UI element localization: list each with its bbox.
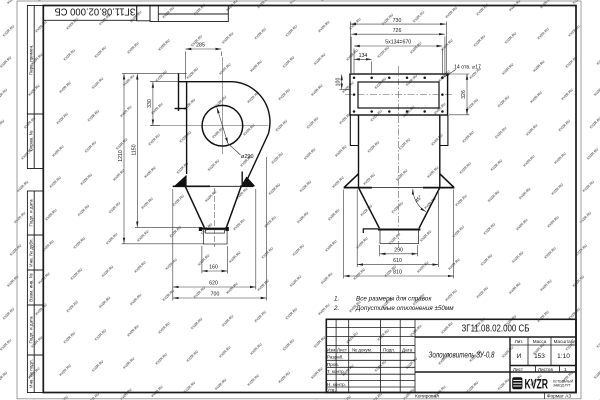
svg-text:Дата: Дата <box>402 347 413 352</box>
svg-text:Разраб.: Разраб. <box>327 355 344 360</box>
svg-text:326: 326 <box>461 90 467 99</box>
svg-text:1.: 1. <box>334 295 339 302</box>
svg-text:№ докум.: № докум. <box>352 347 372 352</box>
svg-text:Формат А3: Формат А3 <box>547 394 572 400</box>
svg-text:Листов: Листов <box>538 367 553 372</box>
svg-text:1150: 1150 <box>131 144 137 155</box>
svg-text:730: 730 <box>393 18 402 24</box>
svg-text:Инв. № дубл.: Инв. № дубл. <box>28 238 33 266</box>
svg-text:1:10: 1:10 <box>557 353 570 360</box>
svg-text:Лит.: Лит. <box>515 339 524 344</box>
svg-text:610: 610 <box>393 258 402 264</box>
svg-text:285: 285 <box>196 43 205 49</box>
svg-text:1: 1 <box>564 367 567 372</box>
svg-text:1210: 1210 <box>118 150 124 162</box>
svg-text:Подп.: Подп. <box>383 347 395 352</box>
svg-text:KVZR: KVZR <box>525 376 549 391</box>
svg-text:И: И <box>517 353 522 360</box>
svg-text:Т. контр.: Т. контр. <box>327 369 345 374</box>
svg-text:100: 100 <box>336 78 342 87</box>
svg-text:620: 620 <box>209 281 218 287</box>
svg-text:330: 330 <box>147 99 153 108</box>
svg-text:5х134=670: 5х134=670 <box>385 40 411 46</box>
svg-text:Подп. и дата: Подп. и дата <box>28 199 33 227</box>
svg-text:810: 810 <box>393 270 402 276</box>
svg-text:Золоуловитель ЗУ-0,8: Золоуловитель ЗУ-0,8 <box>429 350 495 359</box>
svg-text:Перв. примен.: Перв. примен. <box>28 45 33 76</box>
svg-text:160: 160 <box>209 265 218 271</box>
svg-text:290: 290 <box>394 247 403 253</box>
svg-text:Допустимые отклонения ±50мм: Допустимые отклонения ±50мм <box>355 305 454 312</box>
svg-text:Взам. инв. №: Взам. инв. № <box>28 273 33 302</box>
svg-text:Пров.: Пров. <box>327 362 339 367</box>
svg-text:ЗГ11.08.02.000 СБ: ЗГ11.08.02.000 СБ <box>462 322 530 334</box>
svg-text:Копировал: Копировал <box>415 394 439 400</box>
svg-text:Утв.: Утв. <box>327 388 336 393</box>
svg-text:134: 134 <box>359 53 368 59</box>
svg-text:14 отв. ⌀17: 14 отв. ⌀17 <box>454 65 481 71</box>
svg-text:Лист: Лист <box>513 367 524 372</box>
svg-text:Масштаб: Масштаб <box>554 339 574 344</box>
svg-text:Лист: Лист <box>337 347 348 352</box>
svg-text:Масса: Масса <box>533 339 547 344</box>
svg-text:ЗАВОД РУТ: ЗАВОД РУТ <box>553 384 572 388</box>
svg-text:ЗГ11.08.02.000 СБ: ЗГ11.08.02.000 СБ <box>54 6 135 17</box>
svg-text:Справ. №: Справ. № <box>28 131 33 152</box>
svg-text:2.: 2. <box>333 305 339 312</box>
svg-text:700: 700 <box>211 292 220 298</box>
svg-text:Подп. и дата: Подп. и дата <box>28 316 33 344</box>
svg-text:Н. контр.: Н. контр. <box>327 382 346 387</box>
svg-text:Изм.: Изм. <box>327 347 337 352</box>
svg-text:Инв. № подл.: Инв. № подл. <box>28 359 33 388</box>
svg-text:ø290: ø290 <box>241 154 254 160</box>
svg-text:726: 726 <box>393 28 402 34</box>
svg-text:Все размеры для справок: Все размеры для справок <box>356 294 432 302</box>
svg-text:153: 153 <box>534 353 545 360</box>
